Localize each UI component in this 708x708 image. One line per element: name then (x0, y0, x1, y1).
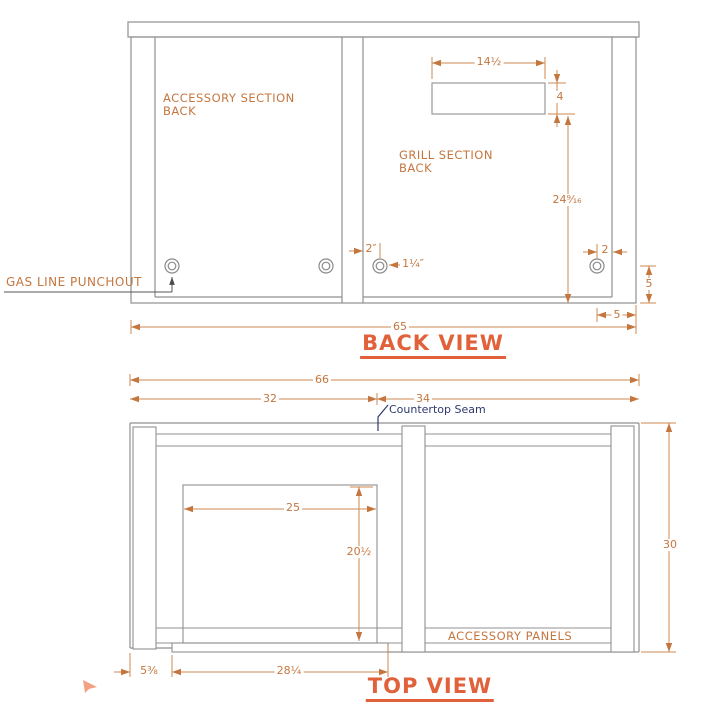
back-view-cabinet-outline (128, 22, 639, 303)
dim-cutout-width: 14½ (475, 56, 504, 68)
top-view-title: TOP VIEW (366, 674, 494, 702)
top-view-outline (130, 423, 639, 652)
dim-right-corner-height: 5 (644, 278, 655, 290)
technical-drawing-page: ACCESSORY SECTION BACK GRILL SECTION BAC… (0, 0, 708, 708)
dim-opening-depth: 20½ (345, 546, 374, 558)
gas-line-punchout-holes (165, 259, 604, 273)
dim-base-notch-inset: 5⅜ (138, 665, 160, 677)
cursor-artifact (83, 680, 97, 693)
top-view-dimension-lines (114, 374, 676, 677)
dim-opening-width: 25 (284, 502, 302, 514)
back-view-title: BACK VIEW (360, 331, 506, 359)
gas-line-punchout-label: GAS LINE PUNCHOUT (6, 276, 142, 289)
dim-cutout-to-base: 24⁹⁄₁₆ (550, 194, 583, 206)
dim-right-punchout-inset: 2 (601, 244, 610, 256)
countertop-seam-leader (378, 405, 388, 431)
dim-grill-section-width: 34 (414, 393, 432, 405)
drawing-linework (0, 0, 708, 708)
dim-right-corner-width: 5 (612, 309, 623, 321)
dim-base-notch-width: 28¼ (275, 665, 304, 677)
dim-punchout-diameter: 1¼″ (400, 258, 426, 270)
dim-left-punchout-inset: 2″ (364, 243, 377, 255)
dim-cutout-height: 4 (555, 91, 566, 103)
countertop-seam-label: Countertop Seam (389, 404, 486, 416)
dim-accessory-section-width: 32 (261, 393, 279, 405)
dim-top-overall-width: 66 (313, 374, 331, 386)
grill-section-back-label: GRILL SECTION BACK (399, 149, 505, 175)
accessory-panels-label: ACCESSORY PANELS (448, 630, 572, 643)
vent-cutout (432, 83, 545, 114)
accessory-section-back-label: ACCESSORY SECTION BACK (163, 92, 303, 118)
dim-overall-depth: 30 (661, 539, 679, 551)
